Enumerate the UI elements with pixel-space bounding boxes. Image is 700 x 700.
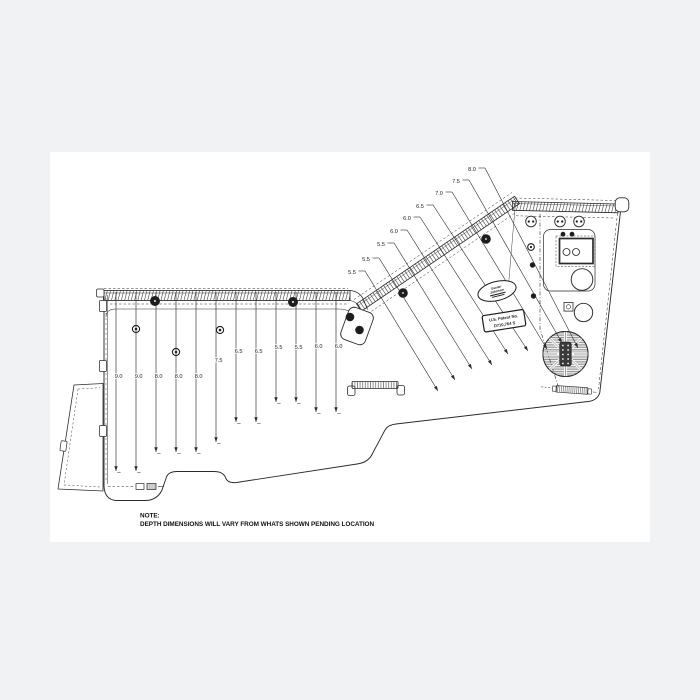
- depth-label: 7.0: [435, 191, 443, 197]
- depth-label: 6.5: [235, 349, 243, 355]
- edge-clip: [100, 361, 107, 372]
- depth-label: 6.5: [416, 204, 424, 210]
- depth-label: 5.5: [275, 345, 283, 351]
- note-body: DEPTH DIMENSIONS WILL VARY FROM WHATS SH…: [140, 521, 374, 528]
- grommet-center: [219, 329, 222, 332]
- bolt-fastener: [555, 216, 566, 227]
- speaker-terminal-dot: [562, 358, 564, 360]
- speaker-terminal-dot: [562, 349, 564, 351]
- flap-clip: [60, 441, 67, 452]
- cad-drawing-canvas: 9.09.08.08.08.07.56.56.55.55.56.06.0: [0, 0, 700, 700]
- grommet-center: [530, 246, 532, 248]
- snap-fastener: [570, 232, 575, 237]
- gauge-hole: [563, 249, 570, 256]
- depth-label: 8.0: [155, 374, 163, 380]
- speaker-terminal-block: [560, 342, 572, 366]
- technical-drawing-page: 9.09.08.08.08.07.56.56.55.55.56.06.0: [0, 0, 700, 700]
- speaker-terminal-dot: [567, 354, 569, 356]
- speaker-terminal-dot: [567, 358, 569, 360]
- depth-label: 5.5: [348, 270, 356, 276]
- vent-end-tab: [588, 389, 592, 394]
- depth-label: 8.0: [175, 374, 183, 380]
- depth-label: 5.5: [295, 345, 303, 351]
- hinge-link: [136, 484, 144, 490]
- switch-cutout: [564, 303, 573, 312]
- depth-label: 6.0: [335, 344, 343, 350]
- gauge-hole: [573, 249, 580, 256]
- snap-pinhole: [292, 301, 294, 303]
- depth-label: 9.0: [115, 374, 123, 380]
- snap-fastener: [346, 313, 355, 322]
- speaker-terminal-dot: [567, 363, 569, 365]
- note-title: NOTE:: [140, 513, 160, 520]
- depth-label: 5.5: [377, 242, 385, 248]
- handle-bar: [352, 382, 398, 389]
- speaker-terminal-dot: [567, 349, 569, 351]
- depth-label: 6.0: [403, 216, 411, 222]
- depth-label: 8.0: [195, 374, 203, 380]
- rail-end-cap: [615, 198, 629, 212]
- speaker-cutout: [542, 330, 589, 377]
- snap-fastener: [561, 232, 566, 237]
- speaker-terminal-dot: [567, 345, 569, 347]
- bolt-fastener: [526, 216, 537, 227]
- bolt-fastener: [574, 216, 585, 227]
- depth-label: 6.0: [390, 229, 398, 235]
- vent-end-tab: [552, 386, 556, 391]
- speaker-terminal-dot: [562, 363, 564, 365]
- depth-label: 7.5: [452, 179, 460, 185]
- edge-clip: [100, 301, 107, 312]
- rail-end-cap: [97, 289, 105, 297]
- depth-label: 8.0: [468, 167, 476, 173]
- depth-label: 6.0: [315, 344, 323, 350]
- depth-label: 6.5: [255, 349, 263, 355]
- edge-clip: [100, 426, 107, 437]
- depth-label: 7.5: [215, 358, 223, 364]
- depth-label: 5.5: [362, 257, 370, 263]
- snap-pinhole: [402, 292, 404, 294]
- speaker-terminal-dot: [562, 354, 564, 356]
- speaker-terminal-dot: [562, 345, 564, 347]
- depth-label: 9.0: [135, 374, 143, 380]
- snap-fastener: [355, 326, 364, 335]
- snap-pinhole: [485, 238, 487, 240]
- rail-hatched-band: [104, 291, 351, 301]
- hinge-link: [147, 484, 156, 490]
